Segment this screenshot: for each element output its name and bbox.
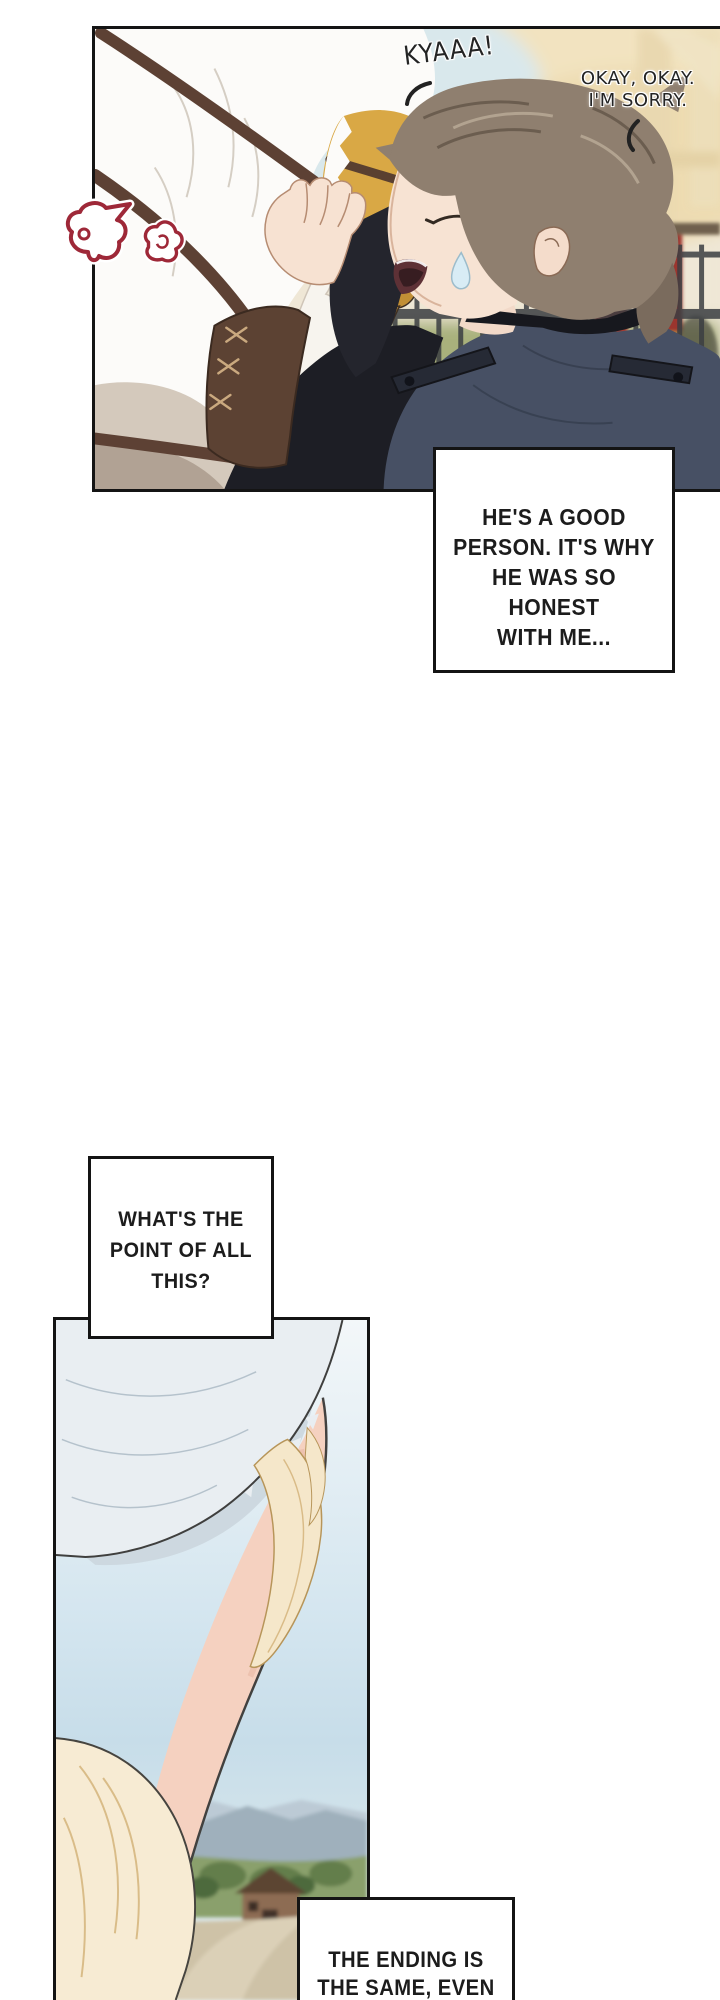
narration2-line3: THIS? — [98, 1266, 264, 1297]
narration2-line1: WHAT'S THE — [98, 1204, 264, 1235]
narration1-line2: PERSON. IT'S WHY — [445, 532, 662, 562]
narration1-line1: HE'S A GOOD — [445, 502, 662, 532]
anger-puff-icons — [54, 190, 204, 286]
narration3-line1: THE ENDING IS — [308, 1946, 503, 1974]
narration-box-2: WHAT'S THE POINT OF ALL THIS? — [88, 1156, 274, 1339]
speech-okay-tail — [622, 118, 648, 154]
comic-page: KYAAA! OKAY, OKAY. I'M SORRY. HE'S A GOO… — [0, 0, 720, 2000]
speech-bubble-okay: OKAY, OKAY. I'M SORRY. — [563, 68, 713, 112]
narration-box-3: THE ENDING IS THE SAME, EVEN — [297, 1897, 515, 2000]
narration1-line3: HE WAS SO HONEST — [445, 562, 662, 622]
anger-puff-icon — [68, 203, 130, 260]
sfx-kyaaa-tail — [404, 80, 434, 106]
speech-okay-line1: OKAY, OKAY. — [563, 68, 713, 90]
anger-puff-icon — [145, 222, 182, 261]
speech-okay-line2: I'M SORRY. — [563, 90, 713, 112]
narration2-line2: POINT OF ALL — [98, 1235, 264, 1266]
narration3-line2: THE SAME, EVEN — [308, 1974, 503, 2000]
narration-box-1: HE'S A GOOD PERSON. IT'S WHY HE WAS SO H… — [433, 447, 675, 673]
narration1-line4: WITH ME... — [445, 622, 662, 652]
